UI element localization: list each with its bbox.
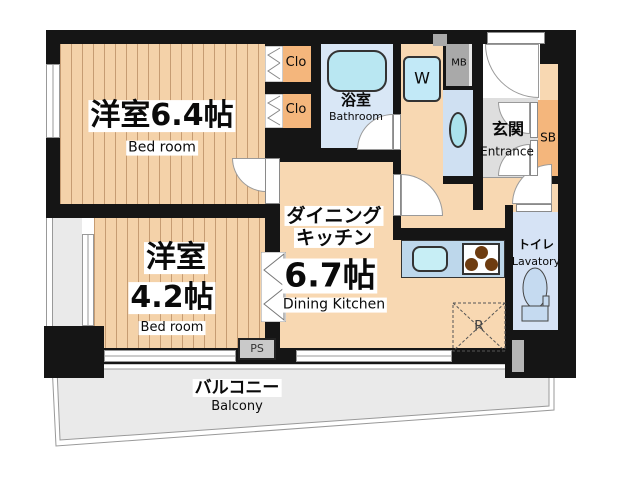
washbasin-icon <box>449 112 467 148</box>
kitchen-sink-icon <box>412 246 448 272</box>
balcony <box>40 360 576 456</box>
front-door-leaf <box>487 32 545 44</box>
bedroom-6-4-label-jp: 洋室6.4帖 <box>88 100 235 132</box>
door-leaf <box>393 114 401 150</box>
bathroom-label-jp: 浴室 <box>341 93 371 109</box>
dining-kitchen-label-en: Dining Kitchen <box>281 298 387 313</box>
duct-bar <box>512 340 524 372</box>
bedroom-4-2-label-jp2: 4.2帖 <box>128 282 215 314</box>
burner-icon <box>485 258 498 271</box>
wall <box>46 204 280 218</box>
wall <box>505 205 513 344</box>
door-leaf <box>393 174 401 216</box>
burner-icon <box>465 258 478 271</box>
entrance-label-jp: 玄関 <box>492 122 524 139</box>
wall-gray-box <box>433 34 447 46</box>
wall <box>305 148 401 162</box>
bathtub-icon <box>327 50 387 92</box>
wall <box>540 44 562 64</box>
window <box>46 64 60 138</box>
closet-top-label: Clo <box>286 56 307 70</box>
bathroom-label-en: Bathroom <box>329 111 383 123</box>
wall <box>558 30 576 378</box>
corner-pillar <box>44 326 104 378</box>
burner-icon <box>475 246 488 259</box>
bedroom-4-2-label-jp1: 洋室 <box>144 242 208 274</box>
balcony-label-jp: バルコニー <box>193 379 282 397</box>
washer-label: W <box>414 71 430 88</box>
door-leaf <box>530 102 538 138</box>
wall <box>393 162 401 174</box>
bifold-door-icon <box>265 46 283 82</box>
meter-box-label: MB <box>451 59 467 70</box>
window <box>104 350 236 362</box>
toilet-label-jp: トイレ <box>518 239 554 252</box>
dining-kitchen-size-label: 6.7帖 <box>282 259 377 294</box>
wall <box>393 44 401 114</box>
toilet-icon <box>517 262 553 326</box>
bedroom-4-2-label-en: Bed room <box>139 321 206 335</box>
balcony-label-en: Balcony <box>211 400 263 414</box>
wall <box>393 216 401 240</box>
window <box>82 234 94 326</box>
door-leaf <box>516 204 552 212</box>
wall <box>443 176 473 184</box>
bedroom-6-4-label-en: Bed room <box>126 141 198 156</box>
pipe-space-label: PS <box>250 343 264 355</box>
closet-bottom-label: Clo <box>286 103 307 117</box>
dining-kitchen-label-jp2: キッチン <box>294 228 374 248</box>
door-leaf <box>265 158 280 204</box>
window <box>296 350 452 362</box>
shoe-box-label: SB <box>540 132 556 145</box>
toilet-label-en: Lavatory <box>512 256 560 268</box>
wall <box>393 228 513 240</box>
entrance-label-en: Entrance <box>480 146 534 159</box>
dining-kitchen-label-jp1: ダイニング <box>284 206 383 226</box>
floor-plan: 洋室6.4帖 Bed room 洋室 4.2帖 Bed room ダイニング キ… <box>0 0 620 480</box>
bifold-door-icon <box>265 94 283 128</box>
refrigerator-label: R <box>474 320 484 335</box>
